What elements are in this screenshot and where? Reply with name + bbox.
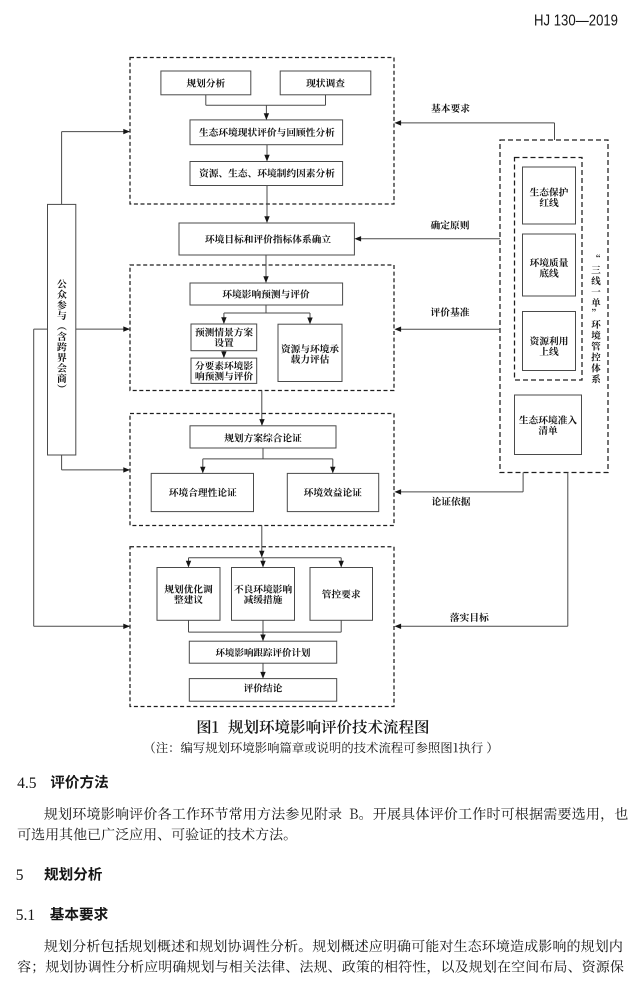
svg-text:HJ 130—2019: HJ 130—2019 <box>534 13 618 30</box>
svg-text:4.5: 4.5 <box>17 775 37 792</box>
svg-text:5.1: 5.1 <box>16 907 35 924</box>
svg-text:5: 5 <box>16 867 24 884</box>
